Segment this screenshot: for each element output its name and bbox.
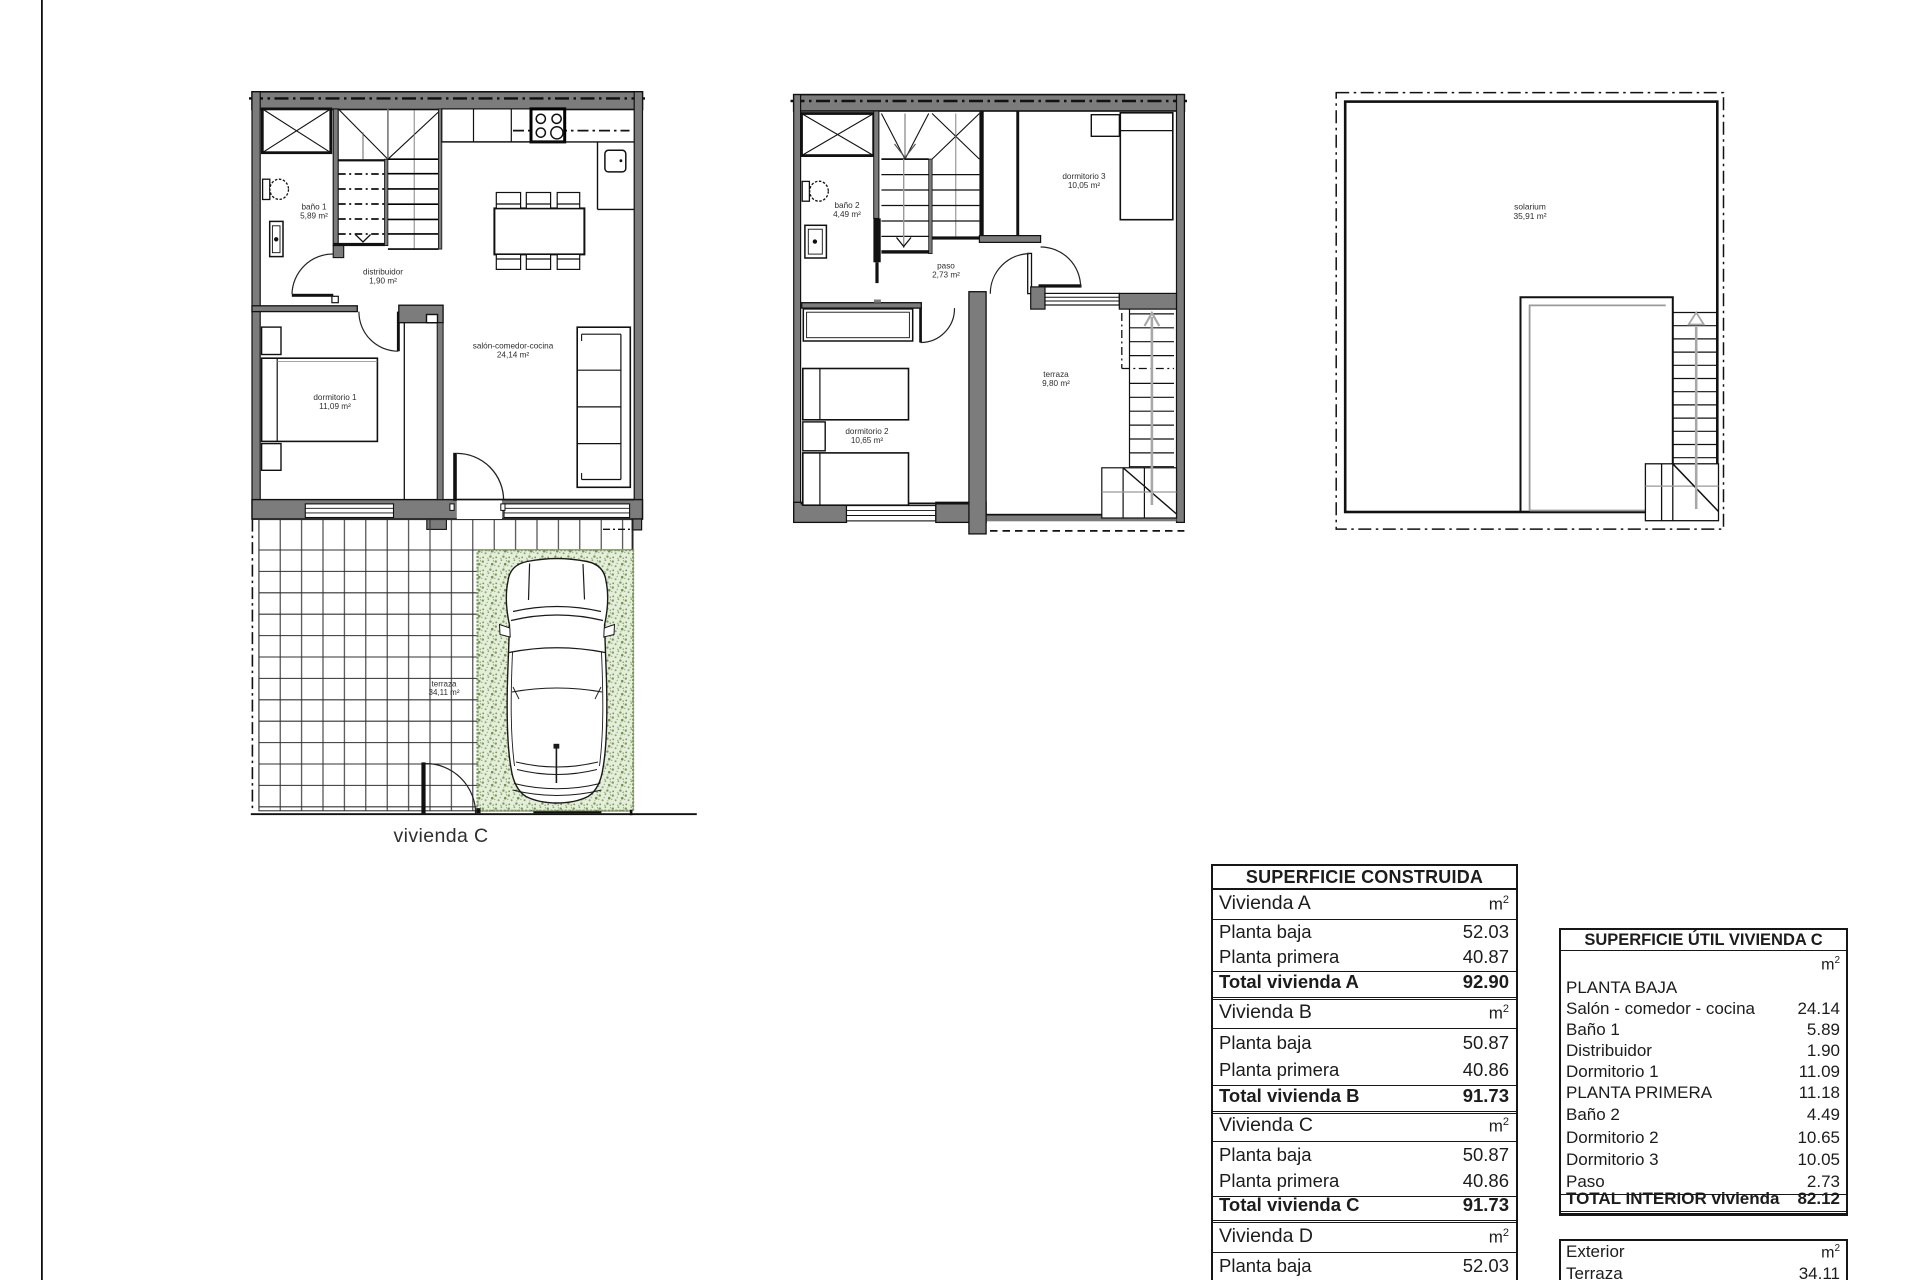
svg-text:24,14 m²: 24,14 m² bbox=[497, 351, 530, 360]
svg-text:5,89 m²: 5,89 m² bbox=[300, 212, 328, 221]
svg-text:11,09 m²: 11,09 m² bbox=[319, 402, 351, 411]
svg-text:1,90 m²: 1,90 m² bbox=[369, 277, 397, 286]
svg-text:34,11 m²: 34,11 m² bbox=[429, 688, 460, 697]
svg-text:dormitorio 3: dormitorio 3 bbox=[1062, 172, 1106, 181]
svg-text:10,65 m²: 10,65 m² bbox=[851, 436, 884, 445]
svg-text:terraza: terraza bbox=[1043, 370, 1069, 379]
svg-text:9,80 m²: 9,80 m² bbox=[1042, 379, 1070, 388]
svg-text:baño 1: baño 1 bbox=[301, 203, 326, 212]
svg-text:2,73 m²: 2,73 m² bbox=[932, 271, 960, 280]
svg-text:dormitorio 2: dormitorio 2 bbox=[845, 427, 889, 436]
svg-text:baño 2: baño 2 bbox=[834, 201, 859, 210]
svg-text:4,49 m²: 4,49 m² bbox=[833, 210, 861, 219]
svg-text:paso: paso bbox=[937, 262, 955, 271]
svg-text:10,05 m²: 10,05 m² bbox=[1068, 181, 1101, 190]
svg-text:distribuidor: distribuidor bbox=[363, 268, 403, 277]
svg-text:solarium: solarium bbox=[1514, 202, 1546, 212]
svg-text:salón-comedor-cocina: salón-comedor-cocina bbox=[473, 342, 554, 351]
svg-text:35,91 m²: 35,91 m² bbox=[1513, 211, 1546, 221]
svg-text:vivienda C: vivienda C bbox=[393, 825, 488, 847]
svg-text:dormitorio 1: dormitorio 1 bbox=[313, 393, 357, 402]
